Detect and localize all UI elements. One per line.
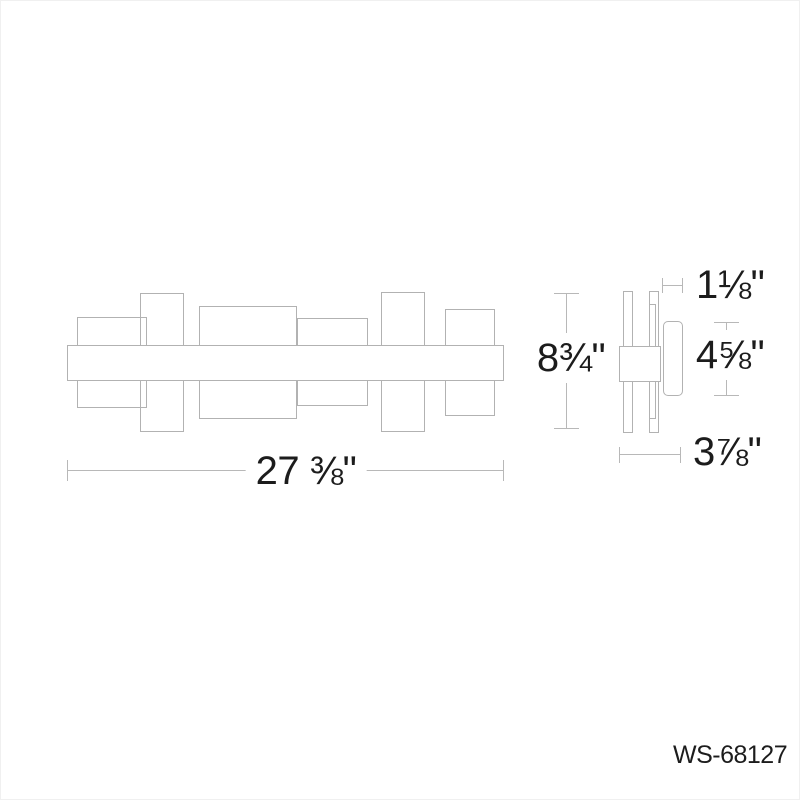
side-mount-block xyxy=(619,346,661,382)
dimension-drawing-canvas: 27 ⅜" 8¾" 1⅛" 4⅝" 3⅞" WS-68127 xyxy=(0,0,800,800)
width-dimension-cap-right xyxy=(503,460,504,481)
glass-height-dimension-cap-top xyxy=(714,322,739,323)
depth-dimension-cap-right xyxy=(680,447,681,463)
width-dimension-cap-left xyxy=(67,460,68,481)
width-dimension-label: 27 ⅜" xyxy=(246,451,367,491)
height-dimension-cap-top xyxy=(554,293,579,294)
model-number-label: WS-68127 xyxy=(673,743,787,768)
height-dimension-cap-bottom xyxy=(554,428,579,429)
top-depth-dimension-cap-right xyxy=(682,278,683,293)
side-glass-profile xyxy=(663,321,683,396)
depth-dimension-line xyxy=(620,454,681,455)
depth-dimension-label: 3⅞" xyxy=(693,432,761,472)
top-depth-dimension-label: 1⅛" xyxy=(696,265,764,305)
front-light-bar xyxy=(67,345,504,381)
height-dimension-label: 8¾" xyxy=(530,333,612,383)
depth-dimension-cap-left xyxy=(619,447,620,463)
top-depth-dimension-line xyxy=(663,285,683,286)
glass-height-dimension-cap-bottom xyxy=(714,395,739,396)
top-depth-dimension-cap-left xyxy=(662,278,663,293)
glass-height-dimension-label: 4⅝" xyxy=(689,330,771,380)
